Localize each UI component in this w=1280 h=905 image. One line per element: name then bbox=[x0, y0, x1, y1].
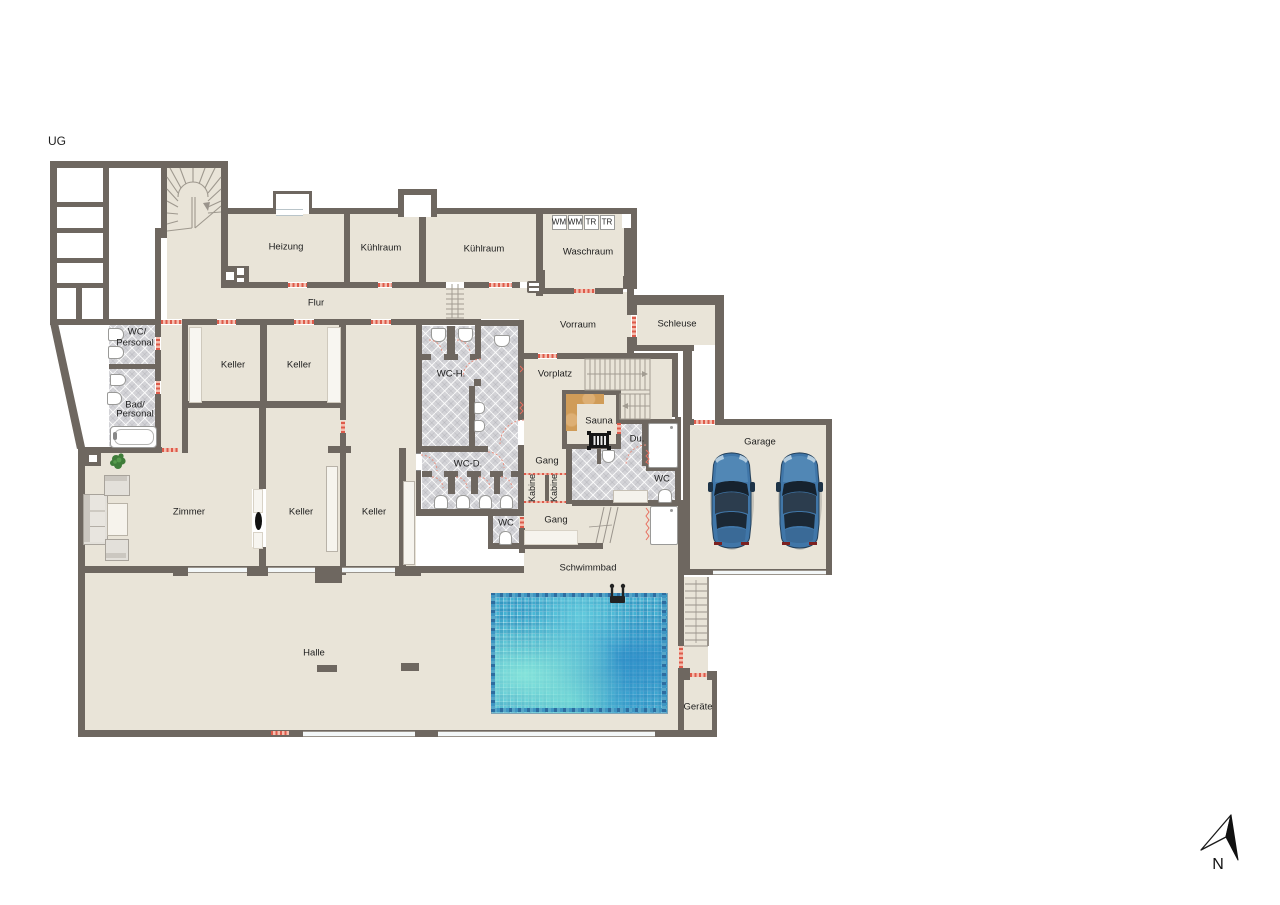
svg-text:N: N bbox=[1212, 856, 1224, 873]
